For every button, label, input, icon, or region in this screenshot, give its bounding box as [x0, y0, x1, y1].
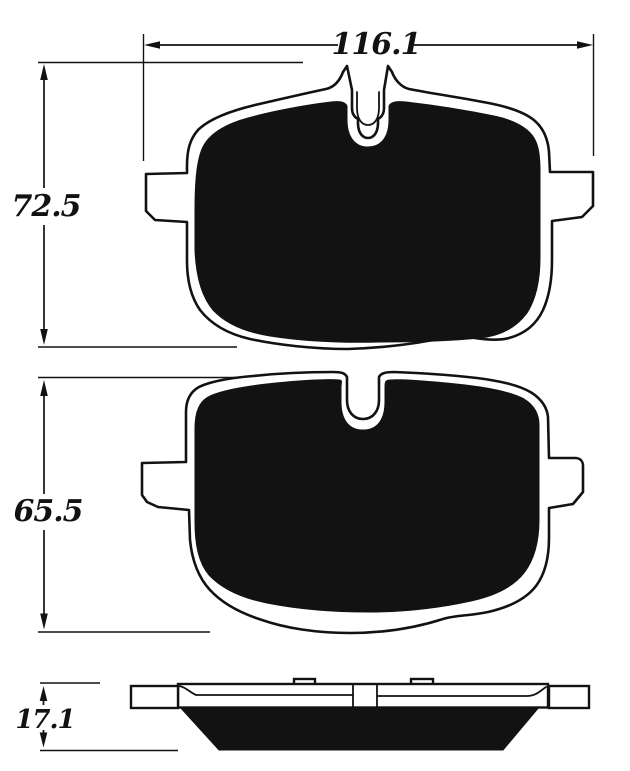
diagram-canvas: 116.1 72.5 65.5 17.1: [0, 0, 630, 771]
side-left-ear-tab: [131, 686, 178, 708]
pad1-height-label: 72.5: [11, 189, 80, 224]
brake-pad-dimension-diagram: 116.1 72.5 65.5 17.1: [0, 0, 630, 771]
pad1-width-label: 116.1: [332, 27, 421, 62]
side-friction-material: [179, 706, 540, 750]
side-thickness-label: 17.1: [15, 705, 74, 735]
pad2-height-label: 65.5: [13, 494, 82, 529]
side-right-ear-tab: [549, 686, 589, 708]
